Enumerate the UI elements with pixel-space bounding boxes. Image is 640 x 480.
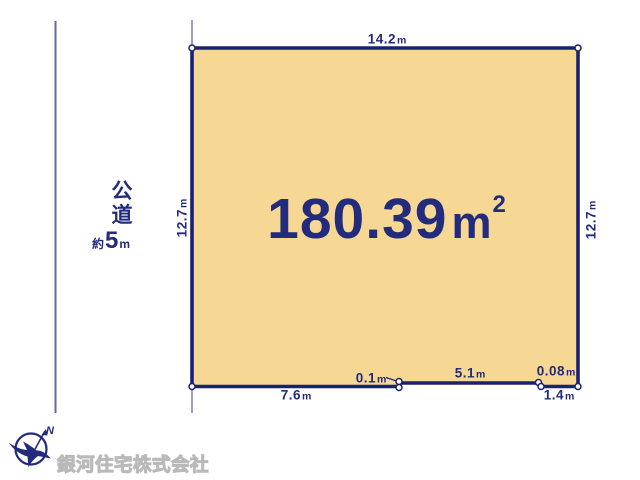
dimension-left: 12.7m	[175, 199, 190, 238]
dimension-right: 12.7m	[584, 201, 599, 240]
plot-area-label: 180.39m2	[267, 186, 507, 252]
vertex-marker-step-left-upper	[396, 379, 402, 385]
dimension-step-left: 0.1m	[356, 371, 387, 386]
dimension-bottom-left: 7.6m	[281, 388, 312, 403]
dimension-bottom-mid: 5.1m	[455, 366, 486, 381]
road-width-label: 約5m	[92, 227, 130, 255]
company-watermark: 銀河住宅株式会社	[57, 451, 209, 477]
dimension-step-right: 0.08m	[537, 364, 576, 379]
compass-north-icon: N	[8, 421, 58, 475]
corner-marker-top-left	[189, 45, 195, 51]
north-label: N	[46, 425, 55, 437]
dimension-top: 14.2m	[368, 32, 407, 47]
corner-marker-bottom-right	[575, 384, 581, 390]
vertex-marker-step-left-lower	[396, 385, 402, 391]
corner-marker-bottom-left	[189, 384, 195, 390]
corner-marker-top-right	[575, 45, 581, 51]
road-name-label: 公 道	[112, 180, 133, 228]
dimension-bottom-right: 1.4m	[544, 388, 575, 403]
